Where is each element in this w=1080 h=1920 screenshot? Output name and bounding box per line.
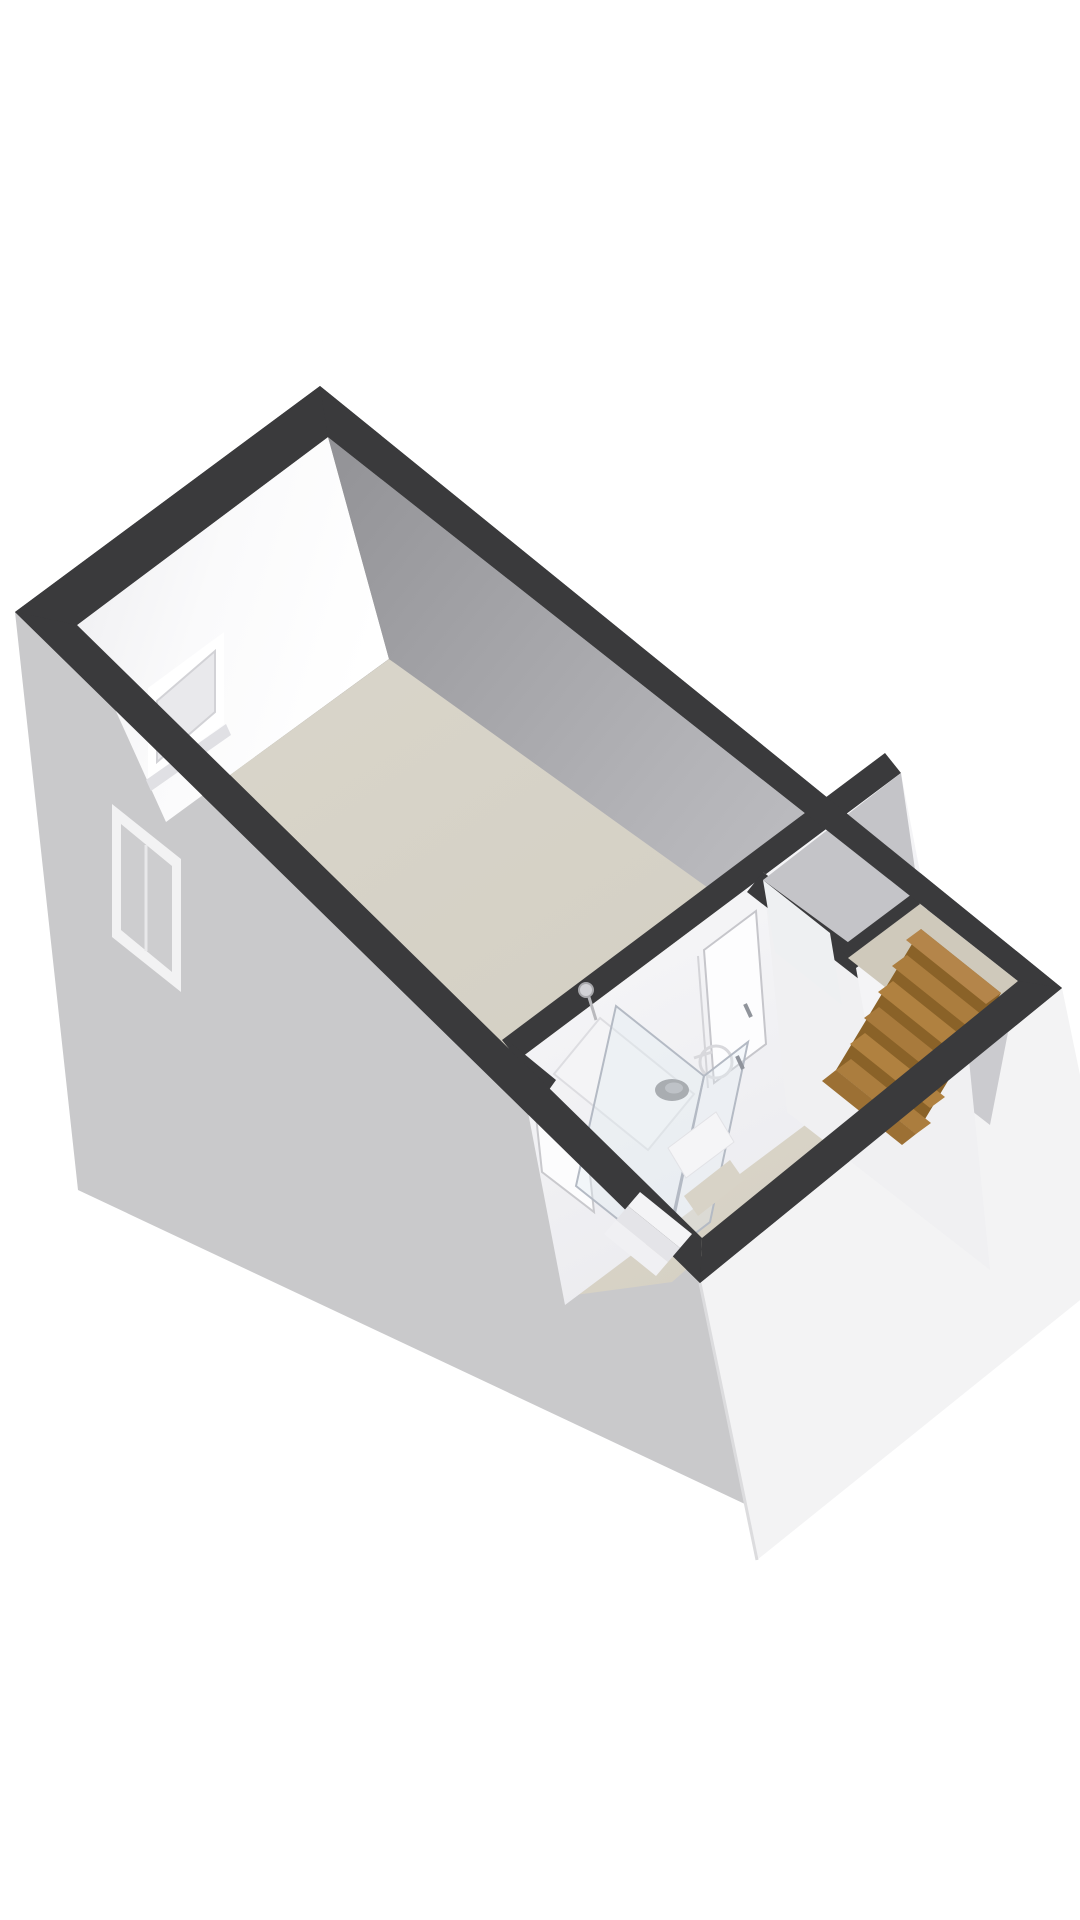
shower-head-icon	[579, 983, 593, 997]
floorplan-3d-view	[0, 0, 1080, 1920]
floorplan-canvas	[0, 0, 1080, 1920]
